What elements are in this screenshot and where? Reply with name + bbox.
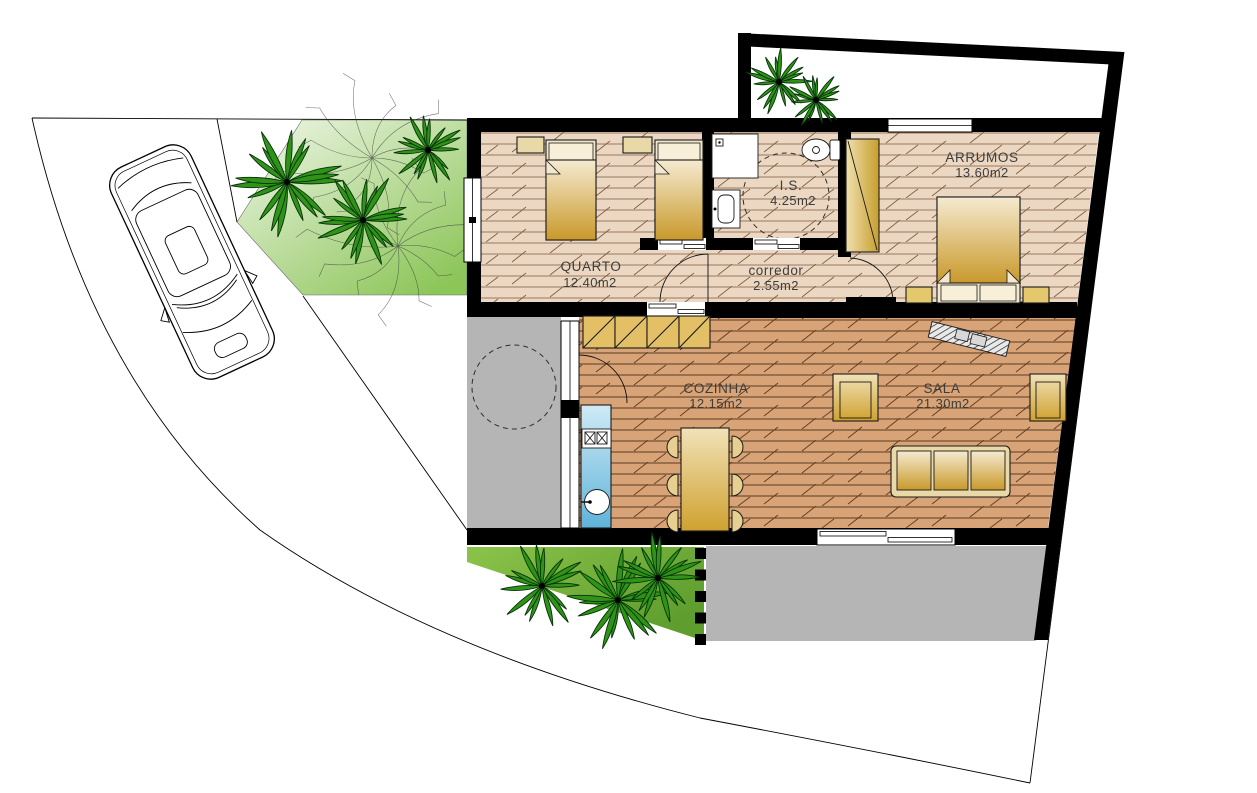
nightstand (517, 137, 544, 153)
sliding-door (753, 238, 800, 250)
room-label-arrumos: ARRUMOS (945, 150, 1018, 165)
single-bed (655, 140, 703, 240)
kitchen-cabinets (583, 316, 710, 348)
side-patio (467, 317, 561, 528)
armchair (833, 374, 878, 421)
nightstand (623, 137, 652, 153)
double-bed (937, 197, 1020, 303)
shower (712, 134, 758, 178)
floor-plan-page: QUARTO 12.40m2 I.S. 4.25m2 corredor 2.55… (0, 0, 1257, 793)
room-area-quarto: 12.40m2 (563, 275, 616, 290)
room-label-sala: SALA (924, 381, 961, 396)
car (95, 134, 289, 389)
wardrobe (846, 139, 879, 252)
patio-dash (695, 613, 706, 624)
armchair (1030, 374, 1066, 421)
washbasin (712, 190, 740, 228)
patio-dash (695, 548, 706, 559)
sofa (891, 446, 1010, 497)
single-bed (546, 140, 596, 240)
room-label-corredor: corredor (748, 263, 803, 278)
room-area-corredor: 2.55m2 (753, 278, 799, 293)
sliding-door (561, 321, 579, 528)
nightstand (906, 287, 932, 303)
cooktop (582, 429, 611, 448)
dining-table (681, 428, 729, 531)
nightstand (1023, 287, 1049, 303)
courtyard-left-wall (738, 33, 751, 121)
patio-dash (695, 570, 706, 581)
sliding-door (647, 302, 705, 317)
room-area-sala: 21.30m2 (916, 396, 969, 411)
sliding-window (817, 529, 955, 545)
room-label-is: I.S. (780, 178, 803, 193)
floor-plan-drawing: QUARTO 12.40m2 I.S. 4.25m2 corredor 2.55… (0, 0, 1257, 793)
corridor-floor (600, 248, 851, 302)
patio-dash (695, 591, 706, 602)
room-area-arrumos: 13.60m2 (955, 165, 1008, 180)
room-label-quarto: QUARTO (561, 259, 622, 274)
toilet (802, 139, 840, 161)
room-area-cozinha: 12.15m2 (689, 396, 742, 411)
window (888, 119, 972, 132)
room-area-is: 4.25m2 (770, 193, 816, 208)
back-patio (706, 546, 1049, 641)
patio-dash (695, 634, 706, 645)
window (464, 178, 481, 262)
room-label-cozinha: COZINHA (684, 381, 749, 396)
